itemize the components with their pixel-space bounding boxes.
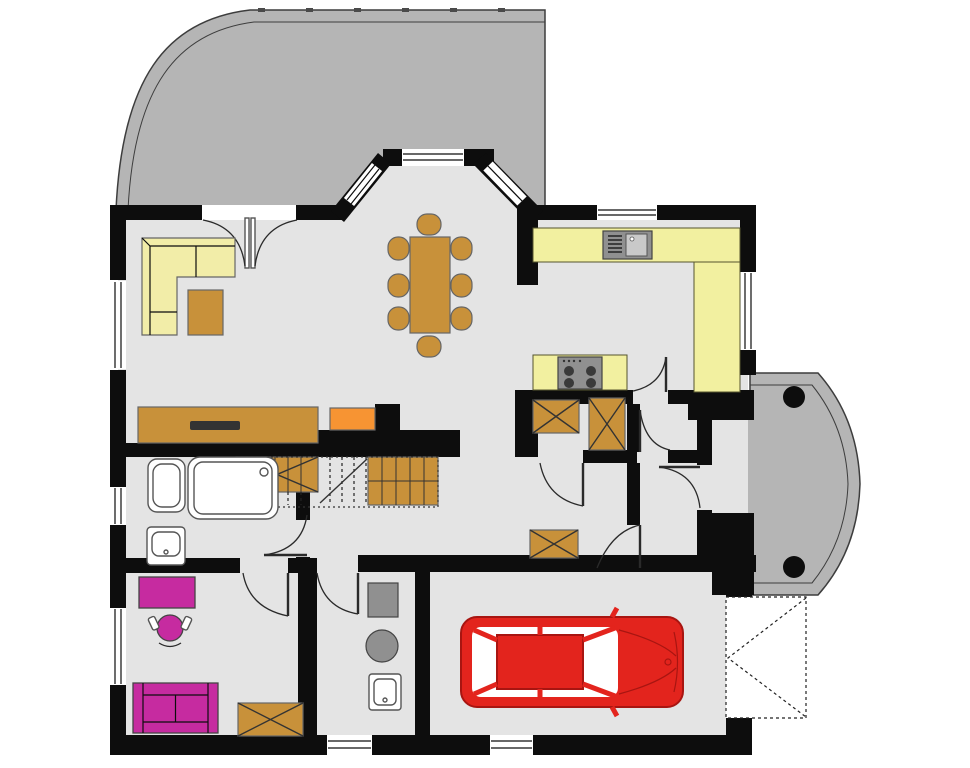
- washbasin: [147, 527, 185, 565]
- office-sofa: [133, 683, 218, 733]
- window-office-left: [110, 608, 126, 685]
- orange-cabinet: [330, 408, 375, 430]
- window-kitchen-top: [597, 205, 657, 220]
- wardrobe-1: [533, 400, 579, 433]
- washing-machine: [368, 583, 398, 617]
- wardrobe-2: [589, 398, 625, 450]
- dining-table: [410, 237, 450, 333]
- floor-plan-drawing: [0, 0, 970, 768]
- utility-sink: [369, 674, 401, 710]
- kitchen-sink: [603, 231, 652, 259]
- desk: [139, 577, 195, 608]
- garage-door-opening: [726, 597, 756, 718]
- garage: [461, 608, 683, 716]
- toilet: [148, 459, 185, 512]
- porch-column: [783, 556, 805, 578]
- floor-plan-page: [0, 0, 970, 768]
- shower: [188, 457, 278, 519]
- stove: [558, 357, 602, 389]
- window-bathroom-left: [110, 487, 126, 525]
- boiler: [366, 630, 398, 662]
- window-utility-bottom: [327, 735, 372, 755]
- bay-window-top: [402, 149, 464, 166]
- counter-right: [694, 262, 740, 392]
- wardrobe-4: [238, 703, 303, 736]
- porch-column: [783, 386, 805, 408]
- armchair-table: [188, 290, 223, 335]
- window-living-left: [110, 281, 126, 369]
- red-car: [461, 608, 683, 716]
- window-garage-bottom: [490, 735, 533, 755]
- wardrobe-3: [530, 530, 578, 558]
- window-kitchen-right: [740, 272, 756, 350]
- car-roof: [497, 635, 583, 689]
- utility-room: [366, 583, 401, 710]
- tv: [190, 421, 240, 430]
